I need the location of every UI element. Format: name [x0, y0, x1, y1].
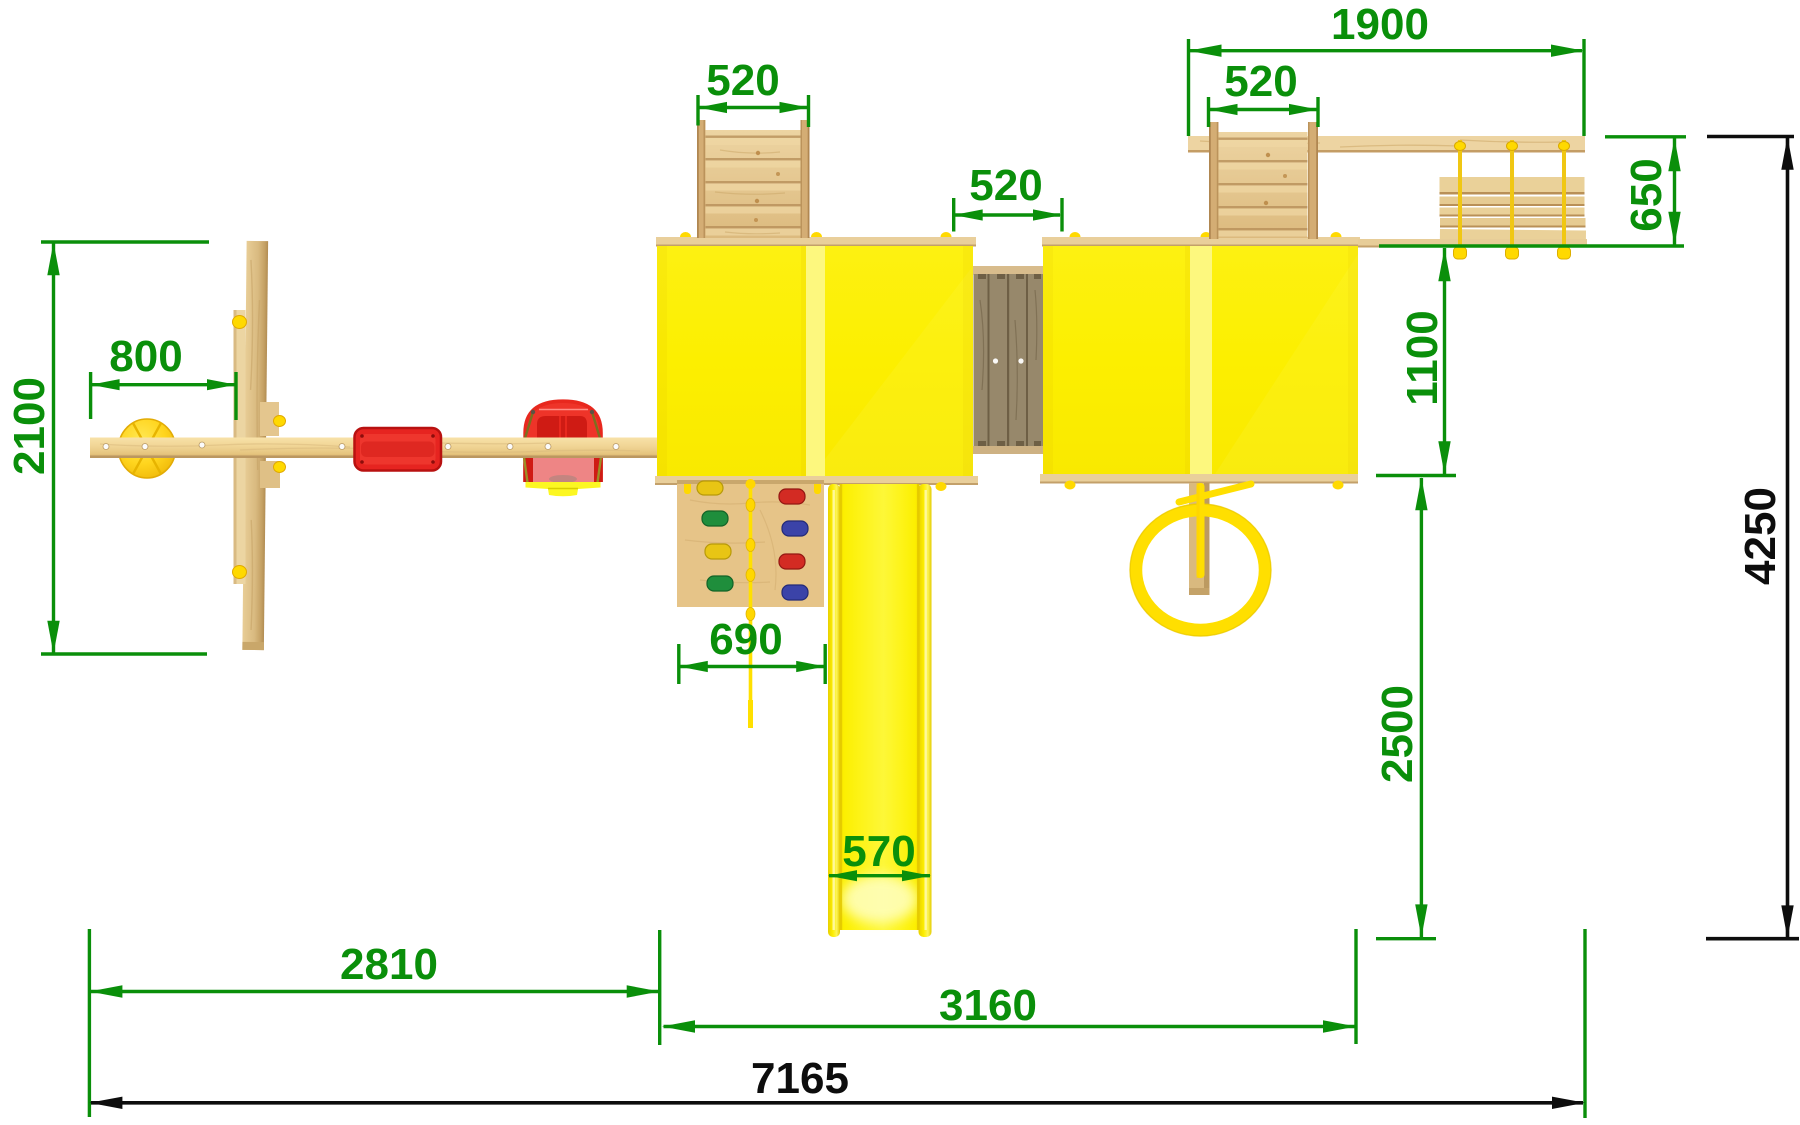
- svg-text:2100: 2100: [5, 377, 54, 475]
- svg-text:4250: 4250: [1736, 487, 1785, 585]
- svg-text:800: 800: [109, 332, 182, 381]
- svg-text:2810: 2810: [340, 940, 438, 989]
- svg-text:690: 690: [709, 615, 782, 664]
- svg-text:520: 520: [969, 161, 1042, 210]
- svg-text:520: 520: [1224, 57, 1297, 106]
- svg-text:650: 650: [1622, 158, 1671, 231]
- svg-text:1100: 1100: [1398, 310, 1447, 405]
- svg-text:1900: 1900: [1331, 0, 1429, 49]
- svg-text:570: 570: [842, 827, 915, 876]
- svg-text:520: 520: [706, 56, 779, 105]
- svg-text:2500: 2500: [1373, 685, 1422, 783]
- svg-text:7165: 7165: [751, 1054, 849, 1103]
- svg-text:3160: 3160: [939, 981, 1037, 1030]
